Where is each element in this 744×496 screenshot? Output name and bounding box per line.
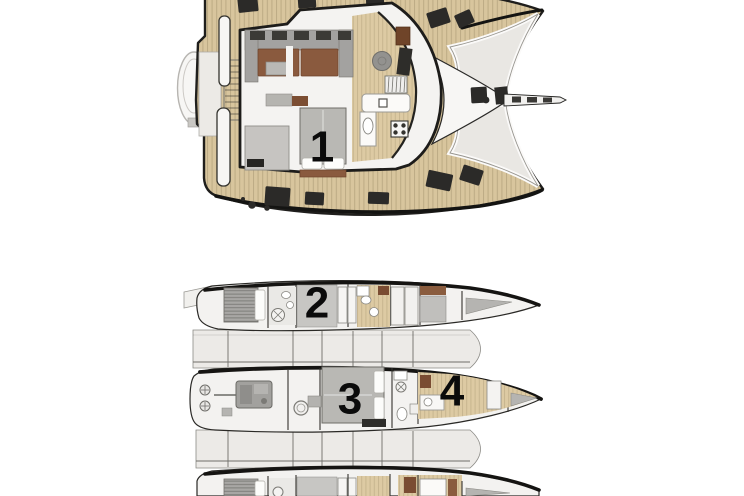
cabinet bbox=[378, 286, 389, 295]
sink bbox=[282, 292, 291, 299]
cabin-2-label: 2 bbox=[305, 279, 329, 328]
wing-deck-top bbox=[193, 330, 481, 368]
vanity bbox=[394, 371, 407, 380]
central-hull: 3 4 bbox=[190, 367, 541, 433]
closet bbox=[405, 287, 418, 325]
side-bench-fwd bbox=[217, 108, 230, 186]
main-deck-plan: 1 bbox=[178, 0, 567, 215]
wardrobe bbox=[338, 287, 347, 323]
floor-plan-image: 1 bbox=[0, 0, 744, 496]
cabin-floor bbox=[297, 477, 337, 496]
utility-box bbox=[308, 396, 321, 407]
cabinet bbox=[420, 375, 431, 388]
port-hull: 2 bbox=[184, 279, 539, 331]
wardrobe bbox=[348, 478, 356, 496]
superstructure: 1 bbox=[240, 3, 441, 177]
cabinet bbox=[404, 477, 416, 493]
bench bbox=[362, 419, 386, 427]
cabin-1-label: 1 bbox=[310, 123, 334, 172]
cabin-3-label: 3 bbox=[338, 375, 362, 424]
cockpit-cushion-right bbox=[301, 49, 338, 76]
pillow bbox=[255, 481, 265, 496]
wardrobe bbox=[266, 94, 292, 106]
forward-berth-head bbox=[420, 286, 446, 295]
pillow bbox=[374, 371, 384, 393]
pillow bbox=[374, 397, 384, 419]
headboard bbox=[448, 479, 457, 496]
galley-cabinet bbox=[396, 27, 410, 45]
berth bbox=[420, 479, 446, 496]
aft-bed bbox=[224, 479, 258, 496]
sink bbox=[424, 398, 432, 406]
counter-sink bbox=[363, 118, 373, 134]
forward-berth bbox=[420, 296, 446, 322]
wardrobe bbox=[487, 381, 501, 409]
wardrobe bbox=[338, 478, 347, 496]
cabin-4-label: 4 bbox=[440, 367, 465, 416]
washer bbox=[294, 401, 308, 415]
closet bbox=[391, 287, 404, 325]
round-table bbox=[373, 52, 392, 71]
cockpit-table bbox=[266, 62, 288, 75]
stove bbox=[391, 121, 408, 137]
side-bench-aft bbox=[219, 16, 230, 86]
bench bbox=[292, 96, 308, 106]
toilet bbox=[287, 302, 294, 309]
tv bbox=[247, 159, 264, 167]
aft-bed bbox=[224, 288, 258, 322]
head-wood-floor bbox=[357, 476, 390, 496]
starboard-hull bbox=[197, 466, 539, 496]
pillow bbox=[255, 290, 265, 320]
wing-deck-bottom bbox=[196, 430, 481, 468]
boat-layout-svg: 1 bbox=[0, 0, 744, 496]
lower-deck-plan: 2 bbox=[184, 279, 541, 496]
sink bbox=[361, 296, 371, 304]
shower bbox=[273, 487, 283, 496]
wardrobe bbox=[348, 287, 356, 323]
toilet bbox=[370, 308, 379, 317]
toilet bbox=[397, 408, 407, 421]
sink bbox=[379, 99, 387, 107]
vanity bbox=[357, 286, 369, 296]
